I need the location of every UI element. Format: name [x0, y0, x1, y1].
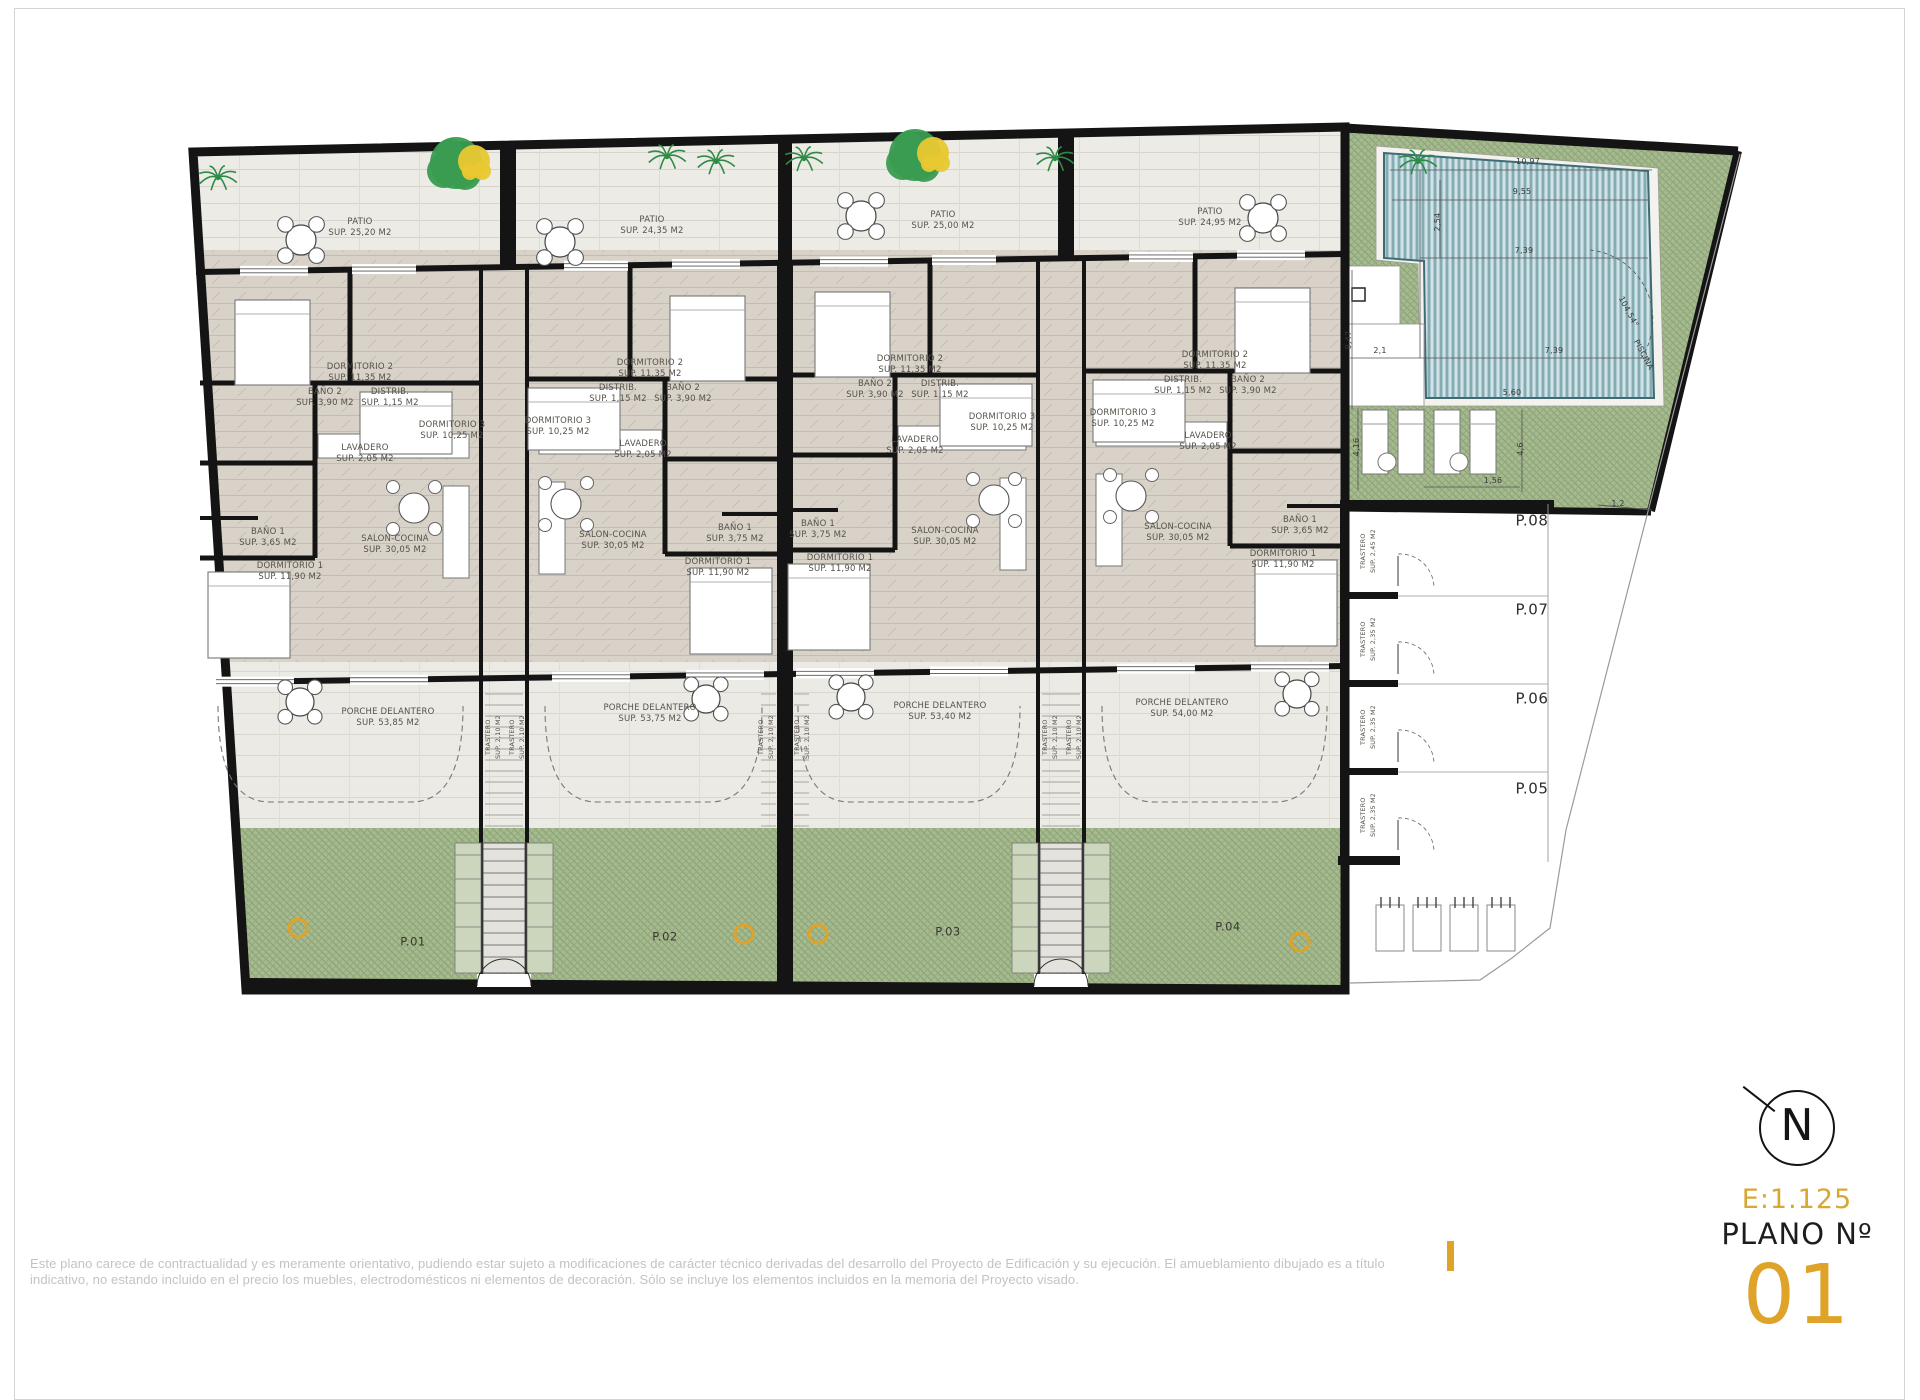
sunbed-icon: [1398, 410, 1424, 474]
dining-table-icon: [551, 489, 581, 519]
window: [1117, 664, 1195, 674]
bed-icon: [1235, 288, 1310, 373]
bed-icon: [235, 300, 310, 385]
chair-icon: [713, 706, 728, 721]
equipment-box: [1352, 288, 1365, 301]
chair-icon: [309, 217, 325, 233]
chair-icon: [967, 473, 980, 486]
chair-icon: [307, 680, 322, 695]
bed-icon: [1255, 560, 1337, 646]
green-bottom-wall: [1345, 508, 1651, 512]
window: [350, 675, 428, 685]
window: [552, 672, 630, 682]
chair-icon: [539, 477, 552, 490]
chair-icon: [387, 481, 400, 494]
chair-icon: [1271, 226, 1287, 242]
side-table-icon: [1450, 453, 1468, 471]
chair-icon: [537, 219, 553, 235]
disclaimer-line-2: indicativo, no estando incluido en el pr…: [30, 1272, 1532, 1288]
door-swing-arc: [1398, 642, 1434, 676]
chair-icon: [278, 248, 294, 264]
chair-icon: [1146, 469, 1159, 482]
chair-icon: [858, 704, 873, 719]
chair-icon: [858, 675, 873, 690]
north-compass-icon: N: [1759, 1090, 1835, 1166]
chair-icon: [684, 677, 699, 692]
chair-icon: [713, 677, 728, 692]
window: [820, 257, 888, 267]
pool-access-area: [1346, 324, 1424, 406]
window: [930, 666, 1008, 676]
stair-flight: [1040, 843, 1082, 973]
chair-icon: [1009, 515, 1022, 528]
parking-stall: [1376, 905, 1404, 951]
dining-table-icon: [979, 485, 1009, 515]
bed-icon: [940, 384, 1032, 446]
chair-icon: [1240, 226, 1256, 242]
bed-icon: [528, 388, 620, 450]
dining-table-icon: [399, 493, 429, 523]
bed-icon: [788, 564, 870, 650]
chair-icon: [537, 250, 553, 266]
chair-icon: [684, 706, 699, 721]
chair-icon: [1104, 469, 1117, 482]
chair-icon: [387, 523, 400, 536]
chair-icon: [1009, 473, 1022, 486]
chair-icon: [1275, 701, 1290, 716]
chair-icon: [309, 248, 325, 264]
bed-icon: [815, 292, 890, 377]
dining-table-icon: [1116, 481, 1146, 511]
planter-steps: [1012, 843, 1038, 973]
chair-icon: [1146, 511, 1159, 524]
window: [932, 255, 996, 265]
north-letter: N: [1761, 1100, 1833, 1151]
chair-icon: [1104, 511, 1117, 524]
entrance-gap: [477, 974, 531, 987]
window: [672, 259, 740, 269]
chair-icon: [568, 219, 584, 235]
chair-icon: [278, 709, 293, 724]
garden-floor: [193, 828, 1345, 990]
door-swing-arc: [1398, 730, 1434, 764]
planter-steps: [527, 843, 553, 973]
chair-icon: [278, 680, 293, 695]
chair-icon: [869, 224, 885, 240]
planter-steps: [455, 843, 481, 973]
storage-divider-wall: [1340, 768, 1398, 775]
sofa-icon: [443, 486, 469, 578]
entrance-gap: [1034, 974, 1088, 987]
parking-stall: [1487, 905, 1515, 951]
chair-icon: [838, 224, 854, 240]
parking-stall: [1450, 905, 1478, 951]
pool: [1384, 153, 1654, 398]
brand-mark: [1447, 1241, 1454, 1271]
disclaimer-text: Este plano carece de contractualidad y e…: [30, 1256, 1532, 1288]
chair-icon: [581, 519, 594, 532]
disclaimer-line-1: Este plano carece de contractualidad y e…: [30, 1256, 1532, 1272]
chair-icon: [829, 704, 844, 719]
planter-steps: [1084, 843, 1110, 973]
storage-top-wall: [1340, 500, 1554, 508]
bed-icon: [360, 392, 452, 454]
plan-scale: E:1.125: [1712, 1184, 1882, 1215]
chair-icon: [581, 477, 594, 490]
window: [1251, 662, 1329, 672]
window: [352, 264, 416, 274]
bed-icon: [208, 572, 290, 658]
window: [1237, 250, 1305, 260]
chair-icon: [838, 193, 854, 209]
storage-divider-wall: [1340, 680, 1398, 687]
chair-icon: [278, 217, 294, 233]
chair-icon: [1304, 672, 1319, 687]
bed-icon: [690, 568, 772, 654]
door-swing-arc: [1398, 818, 1434, 852]
window: [240, 266, 308, 276]
chair-icon: [1240, 195, 1256, 211]
floor-plan-drawing: [0, 0, 1920, 1280]
chair-icon: [869, 193, 885, 209]
bed-icon: [1093, 380, 1185, 442]
plan-number-label: PLANO Nº: [1712, 1217, 1882, 1251]
chair-icon: [429, 523, 442, 536]
door-swing-arc: [1398, 554, 1434, 588]
chair-icon: [967, 515, 980, 528]
sunbed-icon: [1470, 410, 1496, 474]
parking-stall: [1413, 905, 1441, 951]
storage-divider-wall: [1340, 592, 1398, 599]
title-block: N E:1.125 PLANO Nº 01: [1712, 1080, 1882, 1335]
pool-garden-zone: [1346, 130, 1738, 510]
chair-icon: [1271, 195, 1287, 211]
chair-icon: [539, 519, 552, 532]
window: [1129, 252, 1193, 262]
patio-divider-wall: [778, 139, 792, 264]
patio-divider-wall: [500, 145, 516, 268]
chair-icon: [1304, 701, 1319, 716]
chair-icon: [1275, 672, 1290, 687]
chair-icon: [429, 481, 442, 494]
plan-number: 01: [1712, 1257, 1882, 1335]
chair-icon: [829, 675, 844, 690]
bed-icon: [670, 296, 745, 381]
stair-flight: [483, 843, 525, 973]
chair-icon: [307, 709, 322, 724]
side-table-icon: [1378, 453, 1396, 471]
chair-icon: [568, 250, 584, 266]
